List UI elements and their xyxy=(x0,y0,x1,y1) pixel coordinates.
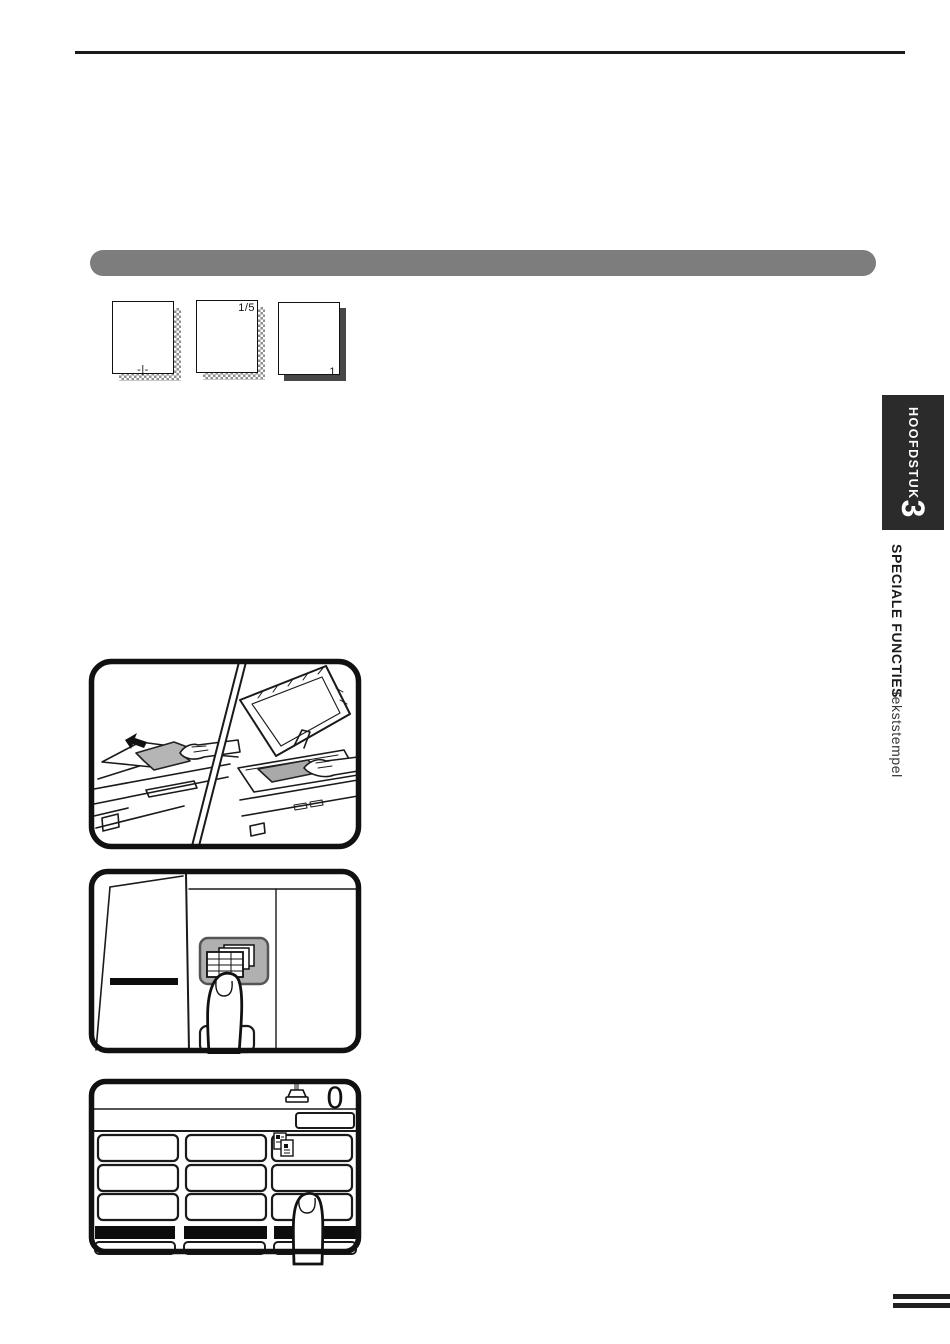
stamp-example-page-of-total: 1/5 xyxy=(196,300,265,380)
chapter-tab-text: HOOFDSTUK3 xyxy=(897,407,929,517)
figure-touch-display: 0 xyxy=(88,1078,362,1266)
copy-counter: 0 xyxy=(326,1081,344,1115)
panel-illustration xyxy=(88,868,362,1054)
section-heading-bar xyxy=(90,250,876,276)
sidebar-section-label: SPECIALE FUNCTIES xyxy=(883,544,905,698)
function-button xyxy=(98,1194,178,1220)
function-button xyxy=(186,1194,266,1220)
figure-place-originals xyxy=(88,658,362,850)
chapter-number: 3 xyxy=(895,500,931,518)
stamp-example-corner-page-number: 1 xyxy=(278,302,347,382)
display-top-button xyxy=(296,1113,354,1128)
sidebar-topic-label: Tekststempel xyxy=(883,689,905,778)
function-button xyxy=(272,1165,352,1191)
page-face xyxy=(278,302,340,375)
function-button xyxy=(98,1165,178,1191)
manual-page: -|- 1/5 1 HOOFDSTUK3 SPECIALE FUNCTIES T… xyxy=(0,0,950,1344)
copier-illustration xyxy=(88,658,362,850)
pointing-finger xyxy=(208,973,242,1054)
touch-display-illustration: 0 xyxy=(88,1078,362,1266)
figure-press-stamp-key xyxy=(88,868,362,1054)
text-stamp-icon xyxy=(286,1090,308,1102)
chapter-word: HOOFDSTUK xyxy=(906,407,920,500)
top-rule xyxy=(75,51,905,54)
panel-slot xyxy=(110,978,178,985)
corner-mark xyxy=(893,1294,950,1299)
function-button xyxy=(98,1135,178,1161)
stamp-example-center-page-number: -|- xyxy=(112,301,181,381)
chapter-tab: HOOFDSTUK3 xyxy=(882,395,944,530)
function-button xyxy=(186,1165,266,1191)
corner-mark xyxy=(893,1303,950,1308)
function-button xyxy=(186,1135,266,1161)
glass-scene xyxy=(238,666,358,836)
stamp-text: 1/5 xyxy=(238,303,255,314)
stamp-text: 1 xyxy=(329,367,336,378)
stamp-text: -|- xyxy=(112,365,174,376)
